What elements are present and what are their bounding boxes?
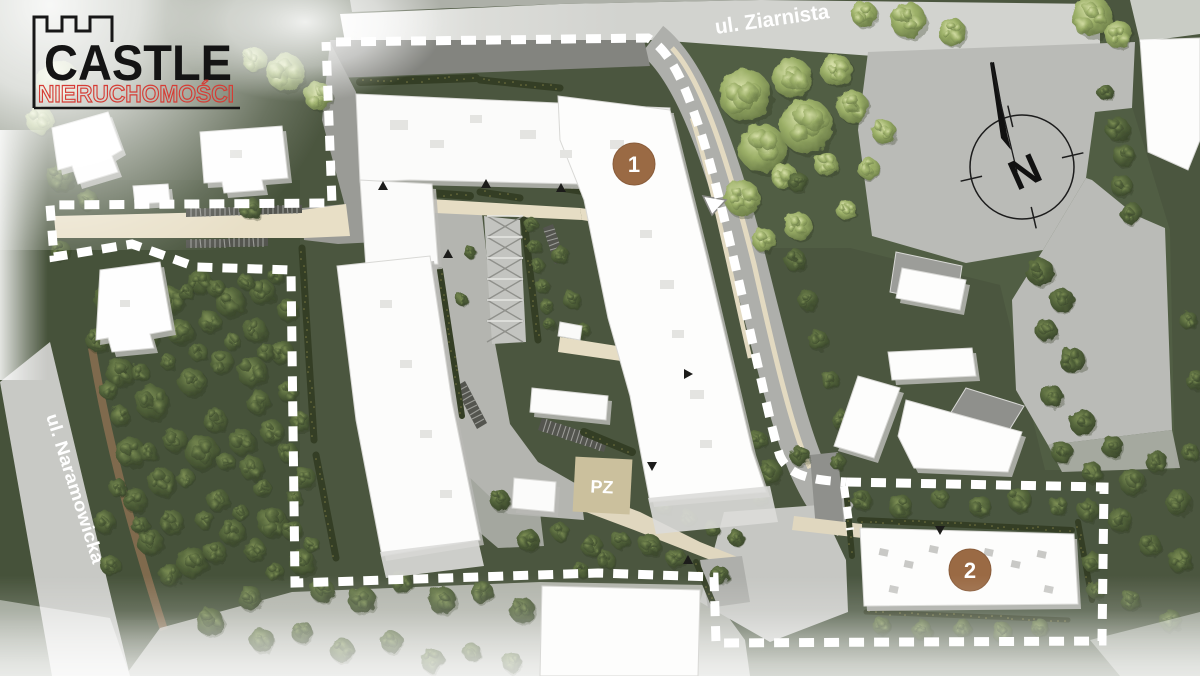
svg-text:1: 1 — [628, 152, 640, 177]
svg-text:NIERUCHOMOŚCI: NIERUCHOMOŚCI — [38, 80, 234, 108]
svg-text:PZ: PZ — [590, 476, 614, 497]
